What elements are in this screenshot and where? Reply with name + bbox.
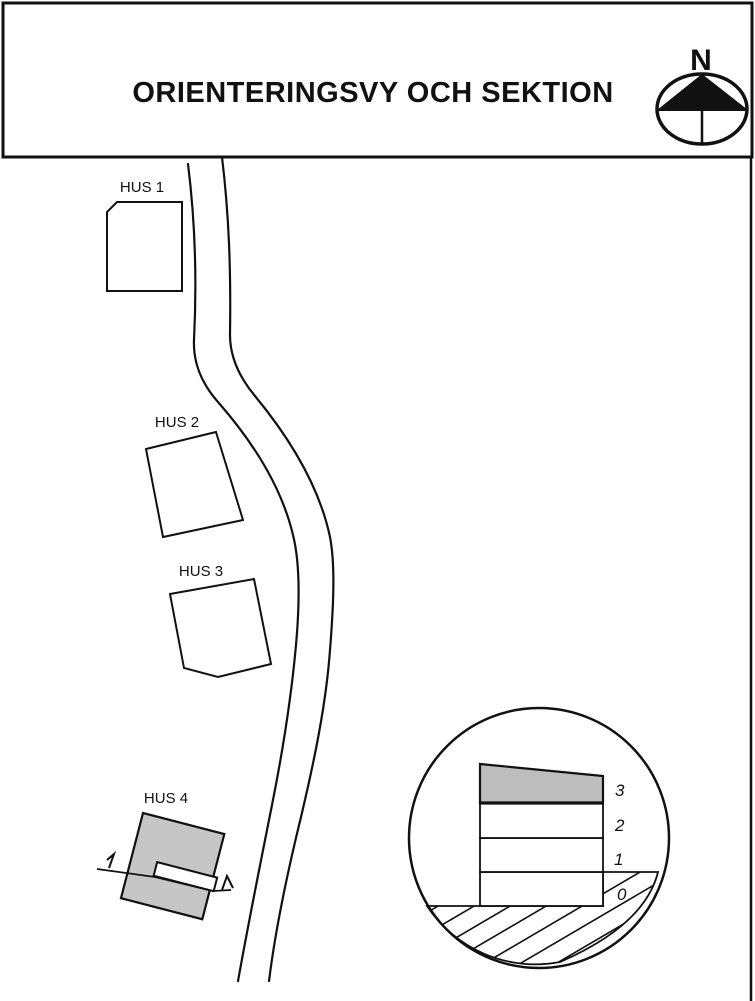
floor-3 bbox=[480, 764, 603, 803]
section-detail: 3 2 1 0 bbox=[295, 708, 736, 990]
floor-label-2: 2 bbox=[614, 816, 625, 835]
drawing-sheet: ORIENTERINGSVY OCH SEKTION N HUS 1 HUS 2… bbox=[0, 0, 755, 1001]
building-outline bbox=[146, 432, 243, 537]
compass-north-triangle bbox=[657, 74, 748, 110]
building-hus-4: HUS 4 bbox=[97, 790, 233, 920]
north-label: N bbox=[690, 44, 712, 77]
section-building bbox=[479, 764, 604, 906]
north-compass-icon: N bbox=[657, 44, 748, 144]
floor-2 bbox=[480, 803, 603, 838]
building-hus-1: HUS 1 bbox=[107, 179, 182, 291]
building-outline bbox=[107, 202, 182, 291]
floor-label-0: 0 bbox=[617, 885, 627, 904]
building-outline bbox=[170, 579, 271, 677]
floor-0 bbox=[480, 872, 603, 906]
road-right-line bbox=[222, 157, 333, 981]
floor-label-3: 3 bbox=[615, 781, 625, 800]
section-cut-marker-left bbox=[107, 854, 114, 868]
building-label: HUS 1 bbox=[120, 179, 164, 196]
building-label: HUS 4 bbox=[144, 790, 188, 807]
floor-1 bbox=[480, 838, 603, 872]
building-hus-2: HUS 2 bbox=[146, 414, 243, 537]
section-cut-marker-right bbox=[222, 876, 233, 890]
page-title: ORIENTERINGSVY OCH SEKTION bbox=[132, 77, 613, 109]
building-label: HUS 2 bbox=[155, 414, 199, 431]
building-label: HUS 3 bbox=[179, 563, 223, 580]
orientation-drawing: ORIENTERINGSVY OCH SEKTION N HUS 1 HUS 2… bbox=[0, 0, 755, 1001]
floor-label-1: 1 bbox=[614, 850, 623, 869]
building-hus-3: HUS 3 bbox=[170, 563, 271, 677]
